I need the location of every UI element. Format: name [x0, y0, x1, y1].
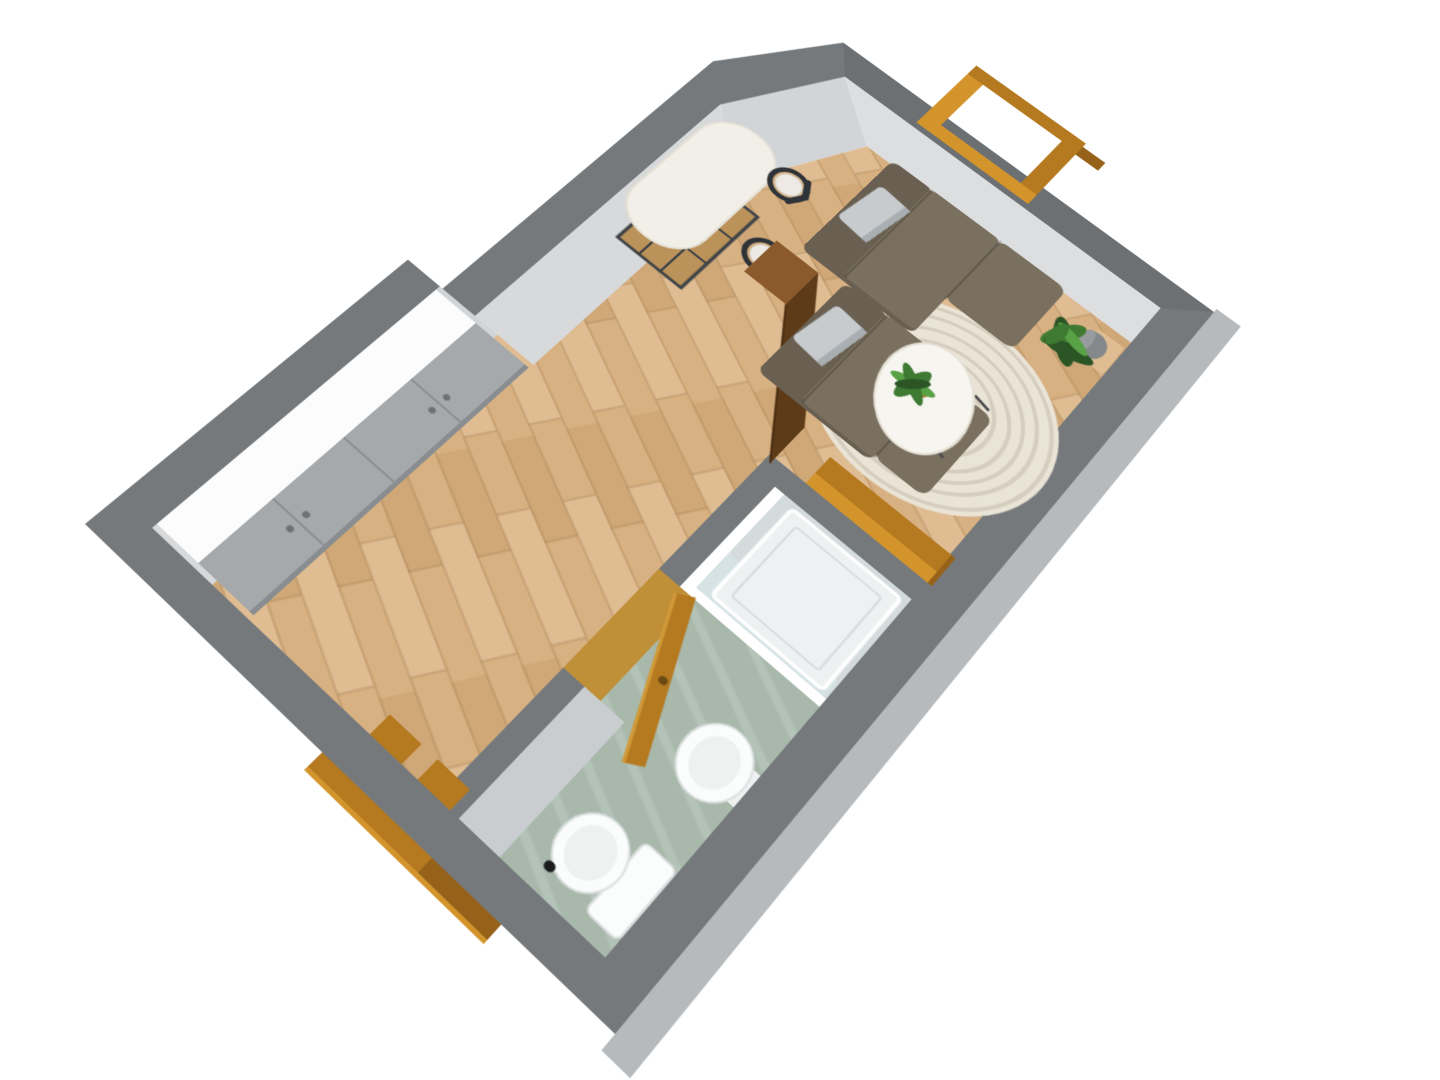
apartment-plan-projection	[8, 0, 1324, 1080]
floor-plan-3d-view	[0, 0, 1440, 1080]
console-bar-right	[968, 66, 1086, 153]
floor-plan-canvas	[8, 0, 1324, 1080]
console-leg	[1075, 147, 1105, 171]
